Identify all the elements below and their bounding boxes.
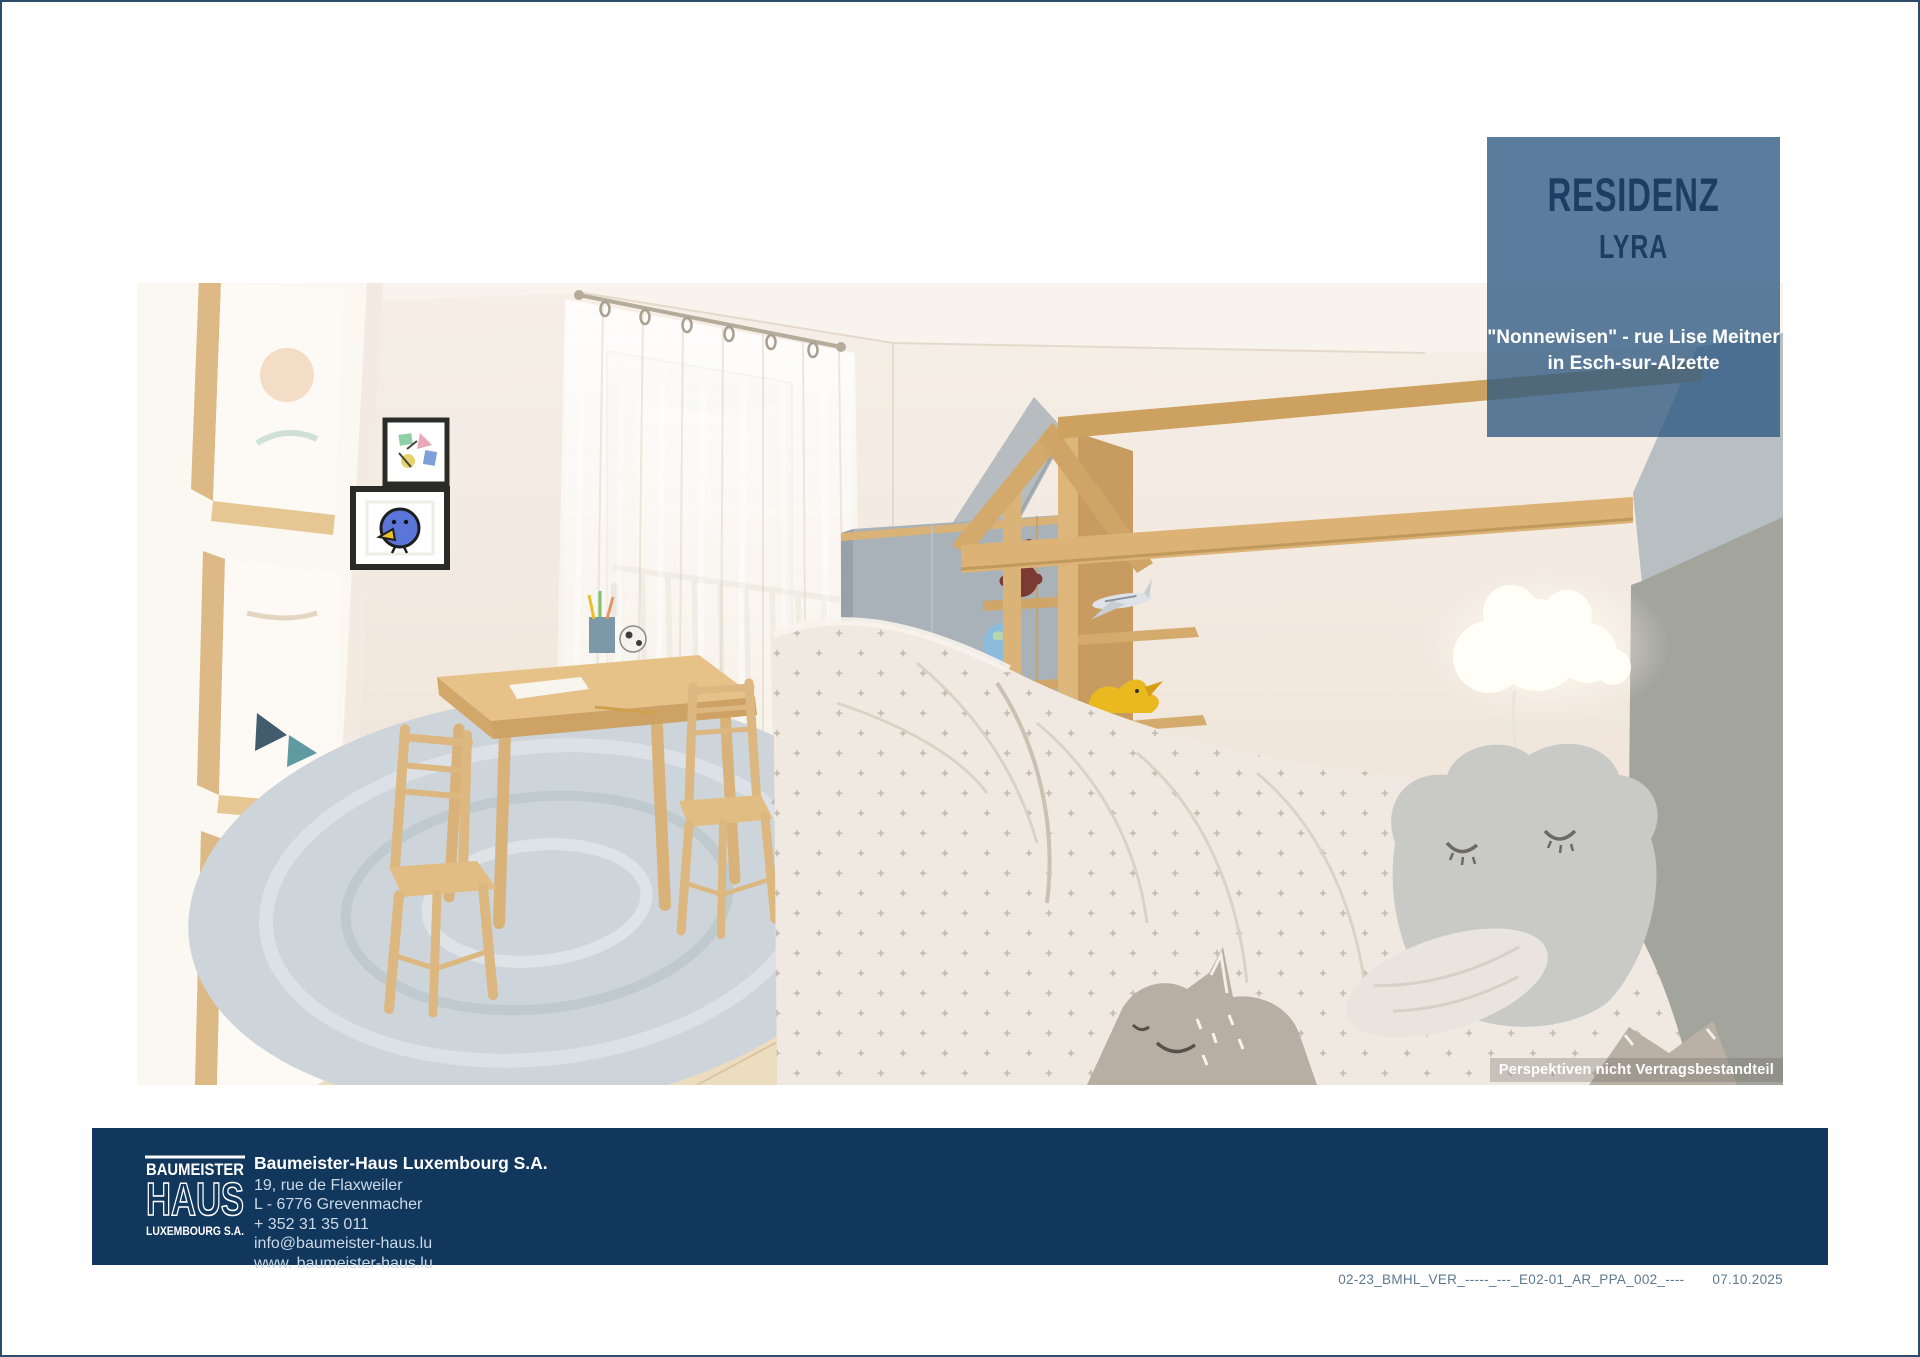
logo-line2: HAUS (146, 1173, 244, 1225)
company-email: info@baumeister-haus.lu (254, 1234, 548, 1254)
logo-line3: LUXEMBOURG S.A. (146, 1224, 244, 1238)
company-info: Baumeister-Haus Luxembourg S.A. 19, rue … (254, 1154, 548, 1273)
abstract-art-frame (385, 420, 447, 484)
project-location: "Nonnewisen" - rue Lise Meitner in Esch-… (1487, 325, 1780, 377)
document-meta: 02-23_BMHL_VER_-----_---_E02-01_AR_PPA_0… (1338, 1272, 1783, 1287)
company-phone: + 352 31 35 011 (254, 1215, 548, 1235)
document-date: 07.10.2025 (1712, 1272, 1783, 1287)
project-location-line2: in Esch-sur-Alzette (1487, 351, 1780, 377)
company-address-line1: 19, rue de Flaxweiler (254, 1176, 548, 1196)
bird-art-frame (353, 489, 447, 567)
company-name: Baumeister-Haus Luxembourg S.A. (254, 1154, 548, 1174)
company-website: www. baumeister-haus.lu (254, 1254, 548, 1274)
project-badge: RESIDENZ LYRA "Nonnewisen" - rue Lise Me… (1487, 137, 1780, 437)
image-disclaimer: Perspektiven nicht Vertragsbestandteil (1490, 1058, 1783, 1082)
document-reference: 02-23_BMHL_VER_-----_---_E02-01_AR_PPA_0… (1338, 1272, 1684, 1287)
baumeister-haus-logo: BAUMEISTER HAUS LUXEMBOURG S.A. (144, 1155, 246, 1241)
company-address-line2: L - 6776 Grevenmacher (254, 1195, 548, 1215)
project-location-line1: "Nonnewisen" - rue Lise Meitner (1487, 325, 1780, 351)
project-title: RESIDENZ (1531, 167, 1736, 222)
footer-bar: BAUMEISTER HAUS LUXEMBOURG S.A. Baumeist… (92, 1128, 1828, 1265)
project-subtitle: LYRA (1522, 228, 1745, 266)
